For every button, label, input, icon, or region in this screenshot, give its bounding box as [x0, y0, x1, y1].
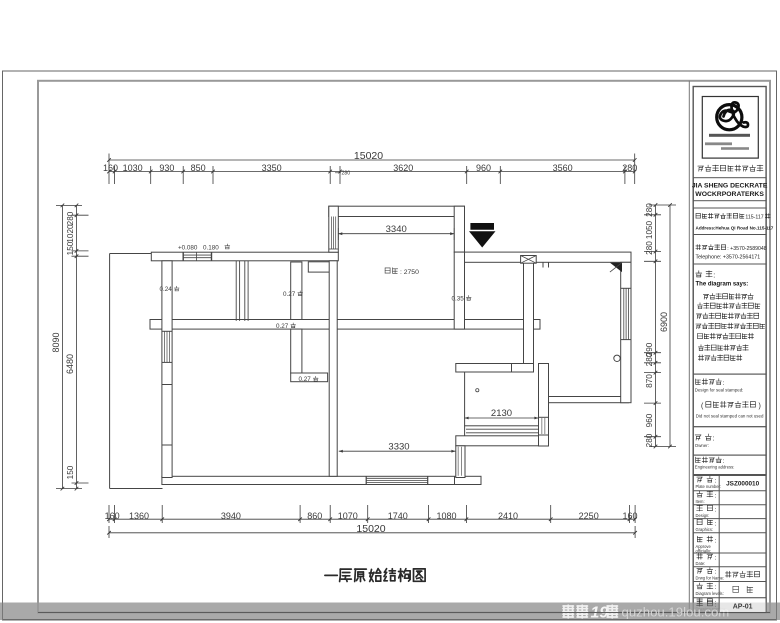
- svg-text:3940: 3940: [221, 511, 241, 521]
- svg-text:280: 280: [341, 170, 350, 176]
- svg-text:2130: 2130: [491, 408, 512, 419]
- svg-text:860: 860: [307, 511, 322, 521]
- svg-text::: :: [715, 537, 717, 544]
- svg-text:JIA SHENG DECKRATE: JIA SHENG DECKRATE: [692, 183, 768, 190]
- svg-text::: :: [715, 492, 717, 499]
- svg-text:3560: 3560: [553, 163, 573, 173]
- svg-text:1030: 1030: [123, 163, 143, 173]
- svg-text:850: 850: [191, 163, 206, 173]
- svg-text:8090: 8090: [51, 332, 61, 352]
- svg-text:1020: 1020: [66, 224, 75, 243]
- svg-text:160: 160: [622, 511, 637, 521]
- svg-text:150: 150: [66, 241, 75, 255]
- svg-text:Owner:: Owner:: [695, 443, 709, 448]
- svg-text:280: 280: [645, 352, 654, 366]
- svg-text:1070: 1070: [338, 511, 358, 521]
- svg-text:280: 280: [645, 203, 654, 217]
- svg-text:1050: 1050: [645, 220, 654, 239]
- svg-text:1740: 1740: [388, 511, 408, 521]
- svg-text:3620: 3620: [393, 163, 413, 173]
- svg-text:870: 870: [645, 374, 654, 388]
- svg-text:0.24: 0.24: [160, 286, 173, 293]
- svg-text:WOCKRPORATERKS: WOCKRPORATERKS: [695, 191, 764, 198]
- svg-text:930: 930: [159, 163, 174, 173]
- svg-text:2410: 2410: [498, 511, 518, 521]
- svg-text:15020: 15020: [354, 150, 383, 162]
- svg-text:6480: 6480: [65, 354, 75, 374]
- svg-text:: 2750: : 2750: [400, 269, 419, 276]
- svg-text:officially:: officially:: [696, 548, 712, 553]
- svg-text:150: 150: [66, 465, 75, 479]
- svg-text:Design:: Design:: [696, 513, 710, 518]
- svg-text::: :: [715, 602, 717, 609]
- svg-text:960: 960: [476, 163, 491, 173]
- svg-text:): ): [759, 403, 761, 410]
- svg-text:3350: 3350: [262, 163, 282, 173]
- svg-text:0.27: 0.27: [276, 323, 289, 330]
- svg-text:15020: 15020: [356, 523, 385, 535]
- svg-text:AP-01: AP-01: [733, 603, 753, 610]
- svg-text:Graphics:: Graphics:: [696, 527, 714, 532]
- svg-text:+0.080: +0.080: [178, 244, 198, 251]
- svg-text:Date:: Date:: [696, 561, 706, 566]
- svg-text::: :: [715, 520, 717, 527]
- svg-text:quzhou.19lou.com: quzhou.19lou.com: [622, 605, 730, 620]
- svg-text:Telephone: +3570-2564171: Telephone: +3570-2564171: [696, 255, 761, 261]
- svg-text:280: 280: [645, 433, 654, 447]
- svg-text:280: 280: [622, 163, 637, 173]
- svg-text:280: 280: [645, 241, 654, 255]
- svg-text:3330: 3330: [388, 441, 409, 452]
- svg-text:Drwg for Name:: Drwg for Name:: [696, 575, 725, 580]
- svg-text:0.35: 0.35: [452, 295, 465, 302]
- svg-text:115-117: 115-117: [745, 215, 763, 221]
- svg-text:0.27: 0.27: [283, 291, 296, 298]
- svg-text:0.180: 0.180: [203, 244, 219, 251]
- svg-text:Address:Hehua Qi Road No.115-1: Address:Hehua Qi Road No.115-117: [696, 225, 774, 230]
- svg-text::: :: [713, 272, 715, 279]
- svg-text::: :: [723, 380, 725, 387]
- svg-text:960: 960: [645, 413, 654, 427]
- svg-text::: :: [715, 506, 717, 513]
- svg-text:Engineering address:: Engineering address:: [695, 465, 735, 470]
- svg-text:1080: 1080: [436, 511, 456, 521]
- svg-text:280: 280: [66, 211, 75, 225]
- svg-text:Plate number:: Plate number:: [696, 484, 722, 489]
- svg-text:: +3570-2589048: : +3570-2589048: [727, 246, 766, 252]
- svg-text:3340: 3340: [386, 224, 407, 235]
- svg-text:Did not seal stamped can not u: Did not seal stamped can not used: [696, 413, 764, 418]
- svg-text:JSZ000010: JSZ000010: [726, 480, 759, 487]
- svg-text:Item:: Item:: [696, 499, 705, 504]
- svg-text:6900: 6900: [659, 312, 669, 332]
- svg-text:Diagram levels:: Diagram levels:: [696, 591, 724, 596]
- svg-text::: :: [713, 436, 715, 443]
- svg-text:The diagram says:: The diagram says:: [696, 281, 749, 287]
- svg-text:160: 160: [103, 163, 118, 173]
- svg-text:1360: 1360: [129, 511, 149, 521]
- svg-text::: :: [715, 554, 717, 561]
- svg-text:2250: 2250: [579, 511, 599, 521]
- svg-text:0.27: 0.27: [299, 376, 312, 383]
- svg-text:160: 160: [105, 511, 120, 521]
- svg-text:Design for seal stamped:: Design for seal stamped:: [695, 387, 744, 392]
